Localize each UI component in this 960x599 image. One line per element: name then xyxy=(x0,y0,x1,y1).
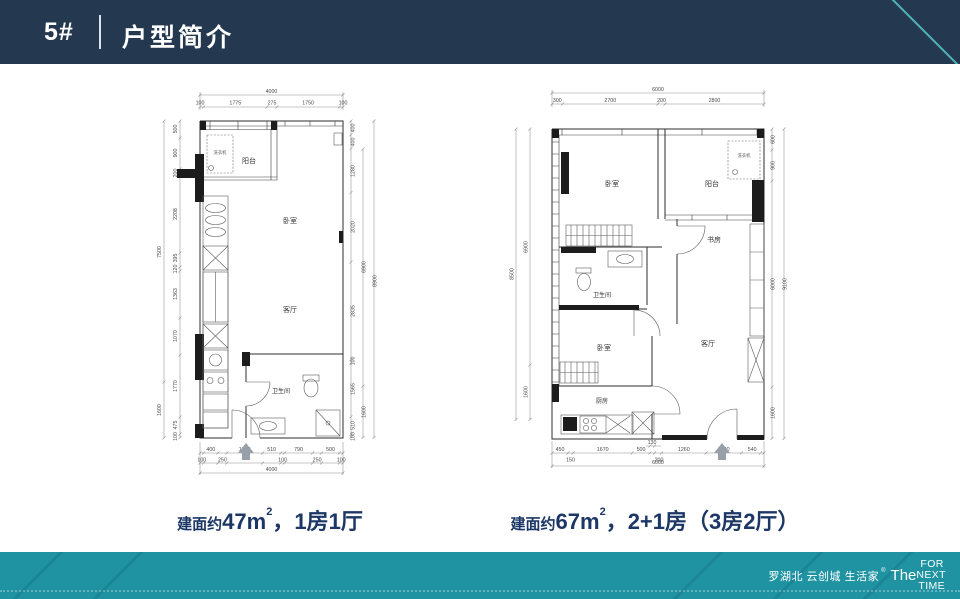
room-label-bedroom1: 卧室 xyxy=(605,179,619,188)
slide-footer: 罗湖北 云创城 生活家 ® The FOR NEXT TIME xyxy=(0,552,960,599)
room-label-balcony: 阳台 xyxy=(242,156,256,165)
dim-label: 6000 xyxy=(771,278,777,290)
dim-label: 100 xyxy=(173,432,179,441)
dim-label: 4000 xyxy=(266,89,278,95)
caption-plan-67: 建面约67m2，2+1房（3房2厅） xyxy=(495,504,815,536)
dim-label: 100 xyxy=(351,432,357,441)
dim-label: 1070 xyxy=(173,330,179,342)
kitchen-area: 厨房 xyxy=(561,397,654,434)
dim-label: 9100 xyxy=(783,278,789,290)
wardrobe-bedroom2 xyxy=(560,362,598,383)
dim-label: 400 xyxy=(351,138,357,147)
dim-label: 2700 xyxy=(604,98,616,104)
dim-label: 7500 xyxy=(157,246,163,258)
dim-label: 1750 xyxy=(302,101,314,107)
logo-for-next-time: FOR NEXT TIME xyxy=(916,559,946,593)
dim-label: 1770 xyxy=(173,380,179,392)
dim-label: 1600 xyxy=(157,404,163,416)
walls xyxy=(177,121,343,438)
floor-plan-47: 4000 100 1775 275 1750 100 400 1000 510 … xyxy=(150,86,390,488)
caption-area: 47m xyxy=(222,509,266,534)
dim-label: 1600 xyxy=(771,407,777,419)
dim-label: 275 xyxy=(268,101,277,107)
caption-sup: 2 xyxy=(600,506,606,518)
dim-label: 500 xyxy=(173,125,179,134)
balcony-area: 洗衣机 阳台 xyxy=(705,141,760,188)
dim-label: 250 xyxy=(218,458,227,464)
registered-mark: ® xyxy=(881,568,885,574)
washer-label: 洗衣机 xyxy=(214,149,228,156)
dim-label: 100 xyxy=(196,101,205,107)
dim-label: 900 xyxy=(173,149,179,158)
header-divider xyxy=(99,15,101,49)
dim-label: 6000 xyxy=(652,460,664,466)
dim-label: 2835 xyxy=(351,305,357,317)
dim-label: 500 xyxy=(637,447,646,453)
dim-label: 100 xyxy=(337,458,346,464)
dim-label: 6000 xyxy=(652,87,664,93)
entrance-arrow-icon xyxy=(714,443,730,460)
caption-plan-47: 建面约47m2，1房1厅 xyxy=(140,504,400,536)
kitchen-cabinet-strip xyxy=(203,196,228,428)
dim-label: 1280 xyxy=(351,165,357,177)
entry-door xyxy=(707,409,737,460)
bathroom-area: 卫生间 xyxy=(576,251,642,299)
caption-sup: 2 xyxy=(266,506,272,518)
slide-header: 5# 户型简介 xyxy=(0,0,960,64)
dim-label: 8900 xyxy=(373,275,379,287)
room-label-bathroom: 卫生间 xyxy=(593,291,611,299)
dim-label: 400 xyxy=(206,447,215,453)
header-diagonal-accent xyxy=(891,0,960,64)
caption-prefix: 建面约 xyxy=(177,516,222,533)
dim-lines-bottom: 400 1000 510 790 500 100 250 100 250 100… xyxy=(197,442,345,475)
dim-label: 790 xyxy=(294,447,303,453)
dim-lines-top: 4000 100 1775 275 1750 100 xyxy=(196,89,348,110)
dim-lines-top: 6000 300 2700 200 2800 xyxy=(551,87,766,107)
dim-label: 300 xyxy=(553,98,562,104)
caption-rooms: ，1房1厅 xyxy=(272,509,362,534)
dim-label: 200 xyxy=(657,98,666,104)
dim-label: 100 xyxy=(197,458,206,464)
dim-label: 450 xyxy=(556,447,565,453)
dim-label: 250 xyxy=(313,458,322,464)
room-label-study: 书房 xyxy=(707,235,721,244)
dim-label: 1600 xyxy=(524,386,530,398)
dim-label: 1363 xyxy=(173,288,179,300)
dim-lines-right: 400 400 1280 2020 2835 100 1565 510 100 … xyxy=(350,120,379,441)
dim-label: 100 xyxy=(351,357,357,366)
dim-label: 400 xyxy=(351,124,357,133)
caption-prefix: 建面约 xyxy=(511,516,556,533)
dim-label: 2208 xyxy=(173,208,179,220)
room-label-balcony: 阳台 xyxy=(705,179,719,188)
floor-plan-67: 6000 300 2700 200 2800 130 450 150 1670 … xyxy=(502,84,794,490)
dim-label: 1260 xyxy=(678,447,690,453)
dim-lines-left: 7500 1600 500 900 200 2208 395 120 1363 … xyxy=(157,120,182,441)
washer-label: 洗衣机 xyxy=(738,152,752,159)
dim-label: 600 xyxy=(771,135,777,144)
building-unit-number: 5# xyxy=(44,18,74,47)
room-label-living: 客厅 xyxy=(283,305,297,314)
dim-label: 6900 xyxy=(524,241,530,253)
dim-label: 100 xyxy=(278,458,287,464)
dim-label: 510 xyxy=(267,447,276,453)
dim-label: 150 xyxy=(566,458,575,464)
wardrobe-bedroom1 xyxy=(566,225,632,246)
dim-label: 4000 xyxy=(266,467,278,473)
dim-label: 1670 xyxy=(597,447,609,453)
dim-label: 500 xyxy=(326,447,335,453)
dim-label: 1775 xyxy=(229,101,241,107)
dim-lines-right: 600 900 6000 1600 9100 xyxy=(771,128,789,441)
bathroom-area: 卫生间 xyxy=(246,375,340,436)
caption-area: 67m xyxy=(556,509,600,534)
dim-lines-left: 8500 6900 1600 xyxy=(510,128,532,422)
dim-label: 540 xyxy=(748,447,757,453)
entrance-arrow-icon xyxy=(238,443,254,460)
dim-label: 475 xyxy=(173,421,179,430)
dim-label: 1600 xyxy=(362,406,368,418)
brand-name: 罗湖北 云创城 生活家 xyxy=(768,568,879,584)
walls xyxy=(552,129,764,440)
dim-label: 120 xyxy=(173,265,179,274)
dim-label: 2800 xyxy=(709,98,721,104)
logo-line-time: TIME xyxy=(916,581,946,592)
dim-label: 6900 xyxy=(362,261,368,273)
page-title: 户型简介 xyxy=(122,18,234,54)
dim-label: 1565 xyxy=(351,383,357,395)
room-label-bathroom: 卫生间 xyxy=(272,387,290,395)
room-label-kitchen: 厨房 xyxy=(596,397,608,405)
room-label-bedroom2: 卧室 xyxy=(597,343,611,352)
dim-label: 510 xyxy=(351,421,357,430)
dim-label: 8500 xyxy=(510,268,516,280)
logo-the: The xyxy=(891,567,917,584)
room-label-bedroom: 卧室 xyxy=(283,216,297,225)
room-label-living: 客厅 xyxy=(701,339,715,348)
ac-unit xyxy=(334,133,342,145)
footer-brand-lockup: 罗湖北 云创城 生活家 ® The FOR NEXT TIME xyxy=(768,552,946,599)
dim-label: 100 xyxy=(339,101,348,107)
dim-label: 395 xyxy=(173,254,179,263)
living-closet-strip xyxy=(748,224,764,382)
dim-label: 900 xyxy=(771,161,777,170)
dim-label: 130 xyxy=(648,440,657,446)
caption-rooms: ，2+1房（3房2厅） xyxy=(606,509,800,534)
dim-label: 2020 xyxy=(351,221,357,233)
dim-lines-bottom: 130 450 150 1670 500 200 1260 1000 540 6… xyxy=(551,440,766,468)
balcony-area: 洗衣机 阳台 xyxy=(207,135,256,173)
